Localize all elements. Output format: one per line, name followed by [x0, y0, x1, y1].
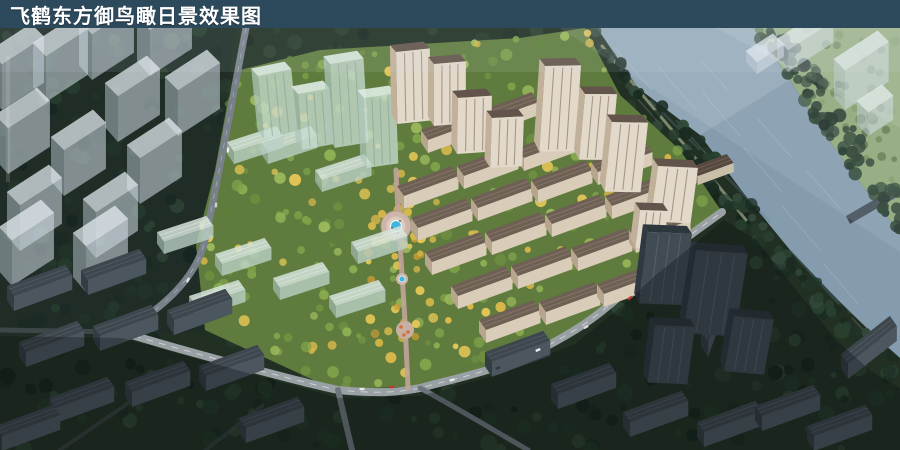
aerial-rendering — [0, 0, 900, 450]
rendering-canvas: 飞鹤东方御鸟瞰日景效果图 — [0, 0, 900, 450]
title-bar: 飞鹤东方御鸟瞰日景效果图 — [0, 0, 900, 28]
page-title: 飞鹤东方御鸟瞰日景效果图 — [0, 0, 262, 29]
